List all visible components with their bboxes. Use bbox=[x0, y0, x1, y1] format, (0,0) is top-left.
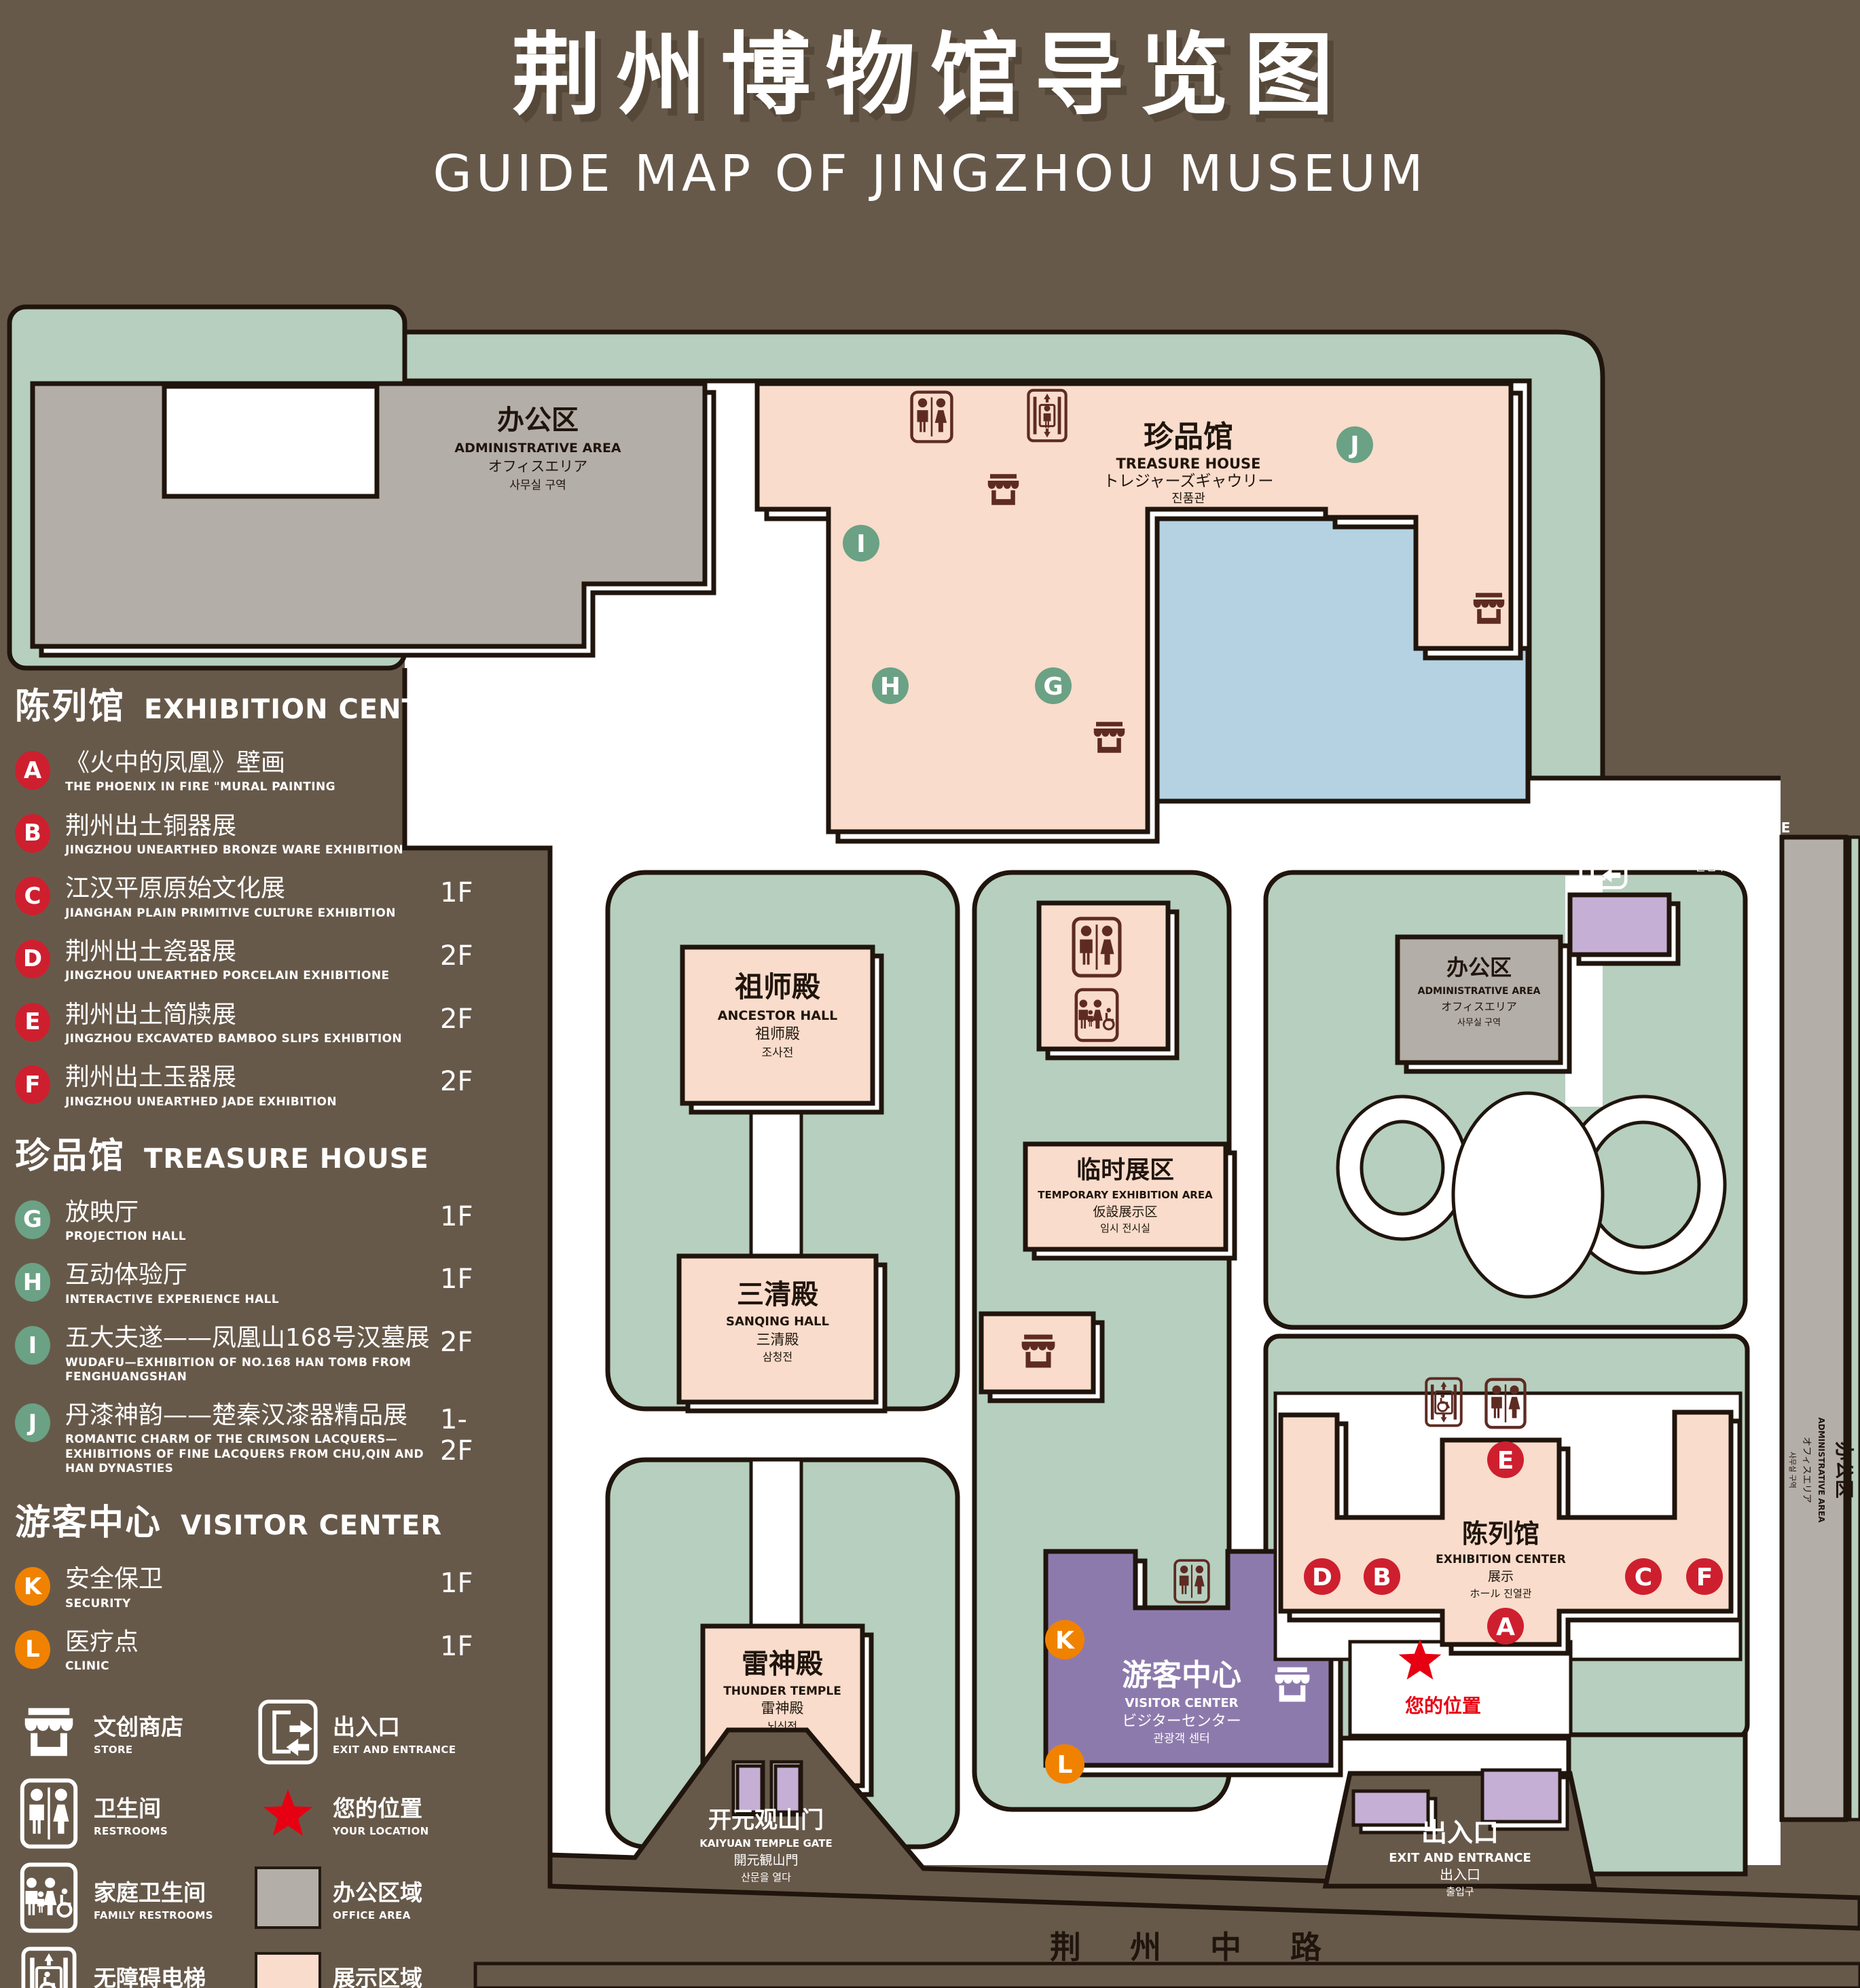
restroom-building bbox=[1039, 903, 1177, 1058]
svg-text:L: L bbox=[1057, 1751, 1073, 1779]
legend-item-E: E 荆州出土简牍展 JINGZHOU EXCAVATED BAMBOO SLIP… bbox=[15, 1001, 498, 1047]
legend-section-treasure-house: 珍品馆 TREASURE HOUSE bbox=[15, 1127, 498, 1178]
svg-text:H: H bbox=[880, 673, 900, 701]
svg-text:I: I bbox=[856, 530, 865, 558]
ancestor-label-zh: 祖师殿 bbox=[735, 970, 820, 1004]
svg-text:E: E bbox=[1497, 1447, 1514, 1475]
family-restroom-icon bbox=[15, 1862, 83, 1933]
admin-strip-label-ja: オフィスエリア bbox=[1801, 1437, 1812, 1503]
floor-label: 2F bbox=[440, 1001, 498, 1035]
marker-badge-J: J bbox=[15, 1403, 50, 1442]
floor-label: 2F bbox=[440, 1324, 498, 1358]
floor-label: 2F bbox=[440, 938, 498, 972]
exit-b-label-ja: 出入口 bbox=[1440, 1866, 1480, 1883]
sanqing-label-ja: 三清殿 bbox=[756, 1331, 799, 1348]
svg-text:A: A bbox=[1496, 1613, 1515, 1641]
legend-item-G: G 放映厅 PROJECTION HALL 1F bbox=[15, 1198, 498, 1245]
legend-office-area: 办公区域 OFFICE AREA bbox=[254, 1862, 493, 1933]
floor-label: 2F bbox=[440, 1063, 498, 1097]
visitor-label-ko: 관광객 센터 bbox=[1153, 1732, 1210, 1746]
gate-label-zh: 开元观山门 bbox=[708, 1807, 824, 1834]
marker-badge-K: K bbox=[15, 1567, 50, 1606]
admin-mid-label-ja: オフィスエリア bbox=[1441, 1000, 1517, 1013]
legend-store: 文创商店 STORE bbox=[15, 1699, 254, 1765]
marker-badge-D: D bbox=[15, 940, 50, 978]
marker-A: A bbox=[1487, 1608, 1524, 1644]
svg-text:D: D bbox=[1312, 1564, 1332, 1591]
thunder-label-ja: 雷神殿 bbox=[761, 1700, 804, 1716]
floor-label: 1F bbox=[440, 875, 498, 908]
marker-F: F bbox=[1686, 1558, 1723, 1595]
legend-item-I: I 五大夫遂——凤凰山168号汉墓展 WUDAFU—EXHIBITION OF … bbox=[15, 1324, 498, 1384]
guide-map-page: 办公区 ADMINISTRATIVE AREA オフィスエリア 사무실 구역 珍… bbox=[0, 0, 1860, 1988]
visitor-label-ja: ビジターセンター bbox=[1122, 1713, 1241, 1730]
treasure-label-en: TREASURE HOUSE bbox=[1116, 456, 1260, 472]
sanqing-hall-building: 三清殿 SANQING HALL 三清殿 삼청전 bbox=[679, 1256, 885, 1411]
store-building bbox=[981, 1314, 1102, 1401]
exit-tr-label-ja: 出入口 bbox=[1689, 840, 1734, 857]
svg-text:F: F bbox=[1696, 1564, 1713, 1591]
gate-label-en: KAIYUAN TEMPLE GATE bbox=[699, 1837, 832, 1849]
marker-badge-H: H bbox=[15, 1263, 50, 1302]
marker-B: B bbox=[1364, 1558, 1400, 1595]
ancestor-label-en: ANCESTOR HALL bbox=[718, 1008, 837, 1023]
marker-L: L bbox=[1045, 1744, 1084, 1784]
floor-label: 1F bbox=[440, 1565, 498, 1599]
office-area-swatch bbox=[254, 1866, 322, 1929]
exit-tr-label-en: EXIT AND ENTRANCE bbox=[1633, 820, 1791, 836]
legend-display-area: 展示区域 DISPLAY AREA bbox=[254, 1947, 493, 1988]
road-name-label: 荆 州 中 路 bbox=[1050, 1929, 1341, 1966]
sanqing-label-zh: 三清殿 bbox=[737, 1279, 818, 1310]
admin-building-mid-right: 办公区 ADMINISTRATIVE AREA オフィスエリア 사무실 구역 bbox=[1398, 937, 1569, 1071]
accessible-elevator-icon bbox=[15, 1947, 83, 1988]
admin-mid-label-zh: 办公区 bbox=[1446, 955, 1512, 980]
legend-exit: 出入口 EXIT AND ENTRANCE bbox=[254, 1699, 493, 1765]
thunder-label-zh: 雷神殿 bbox=[742, 1649, 823, 1680]
section-title-en: EXHIBITION CENTER bbox=[144, 694, 462, 725]
exit-tr-label-ko: 출입구 bbox=[1696, 860, 1728, 874]
legend-item-J: J 丹漆神韵——楚秦汉漆器精品展 ROMANTIC CHARM OF THE C… bbox=[15, 1401, 498, 1476]
sanqing-label-en: SANQING HALL bbox=[726, 1314, 829, 1329]
admin-strip-label-en: ADMINISTRATIVE AREA bbox=[1817, 1418, 1826, 1524]
exit-b-label-en: EXIT AND ENTRANCE bbox=[1389, 1851, 1531, 1865]
sanqing-label-ko: 삼청전 bbox=[763, 1350, 792, 1363]
legend-family-restrooms: 家庭卫生间 FAMILY RESTROOMS bbox=[15, 1862, 254, 1933]
admin-building-right-strip: 办公区 ADMINISTRATIVE AREA オフィスエリア 사무실 구역 bbox=[1782, 837, 1855, 1820]
marker-J: J bbox=[1336, 426, 1373, 463]
your-location-label: 您的位置 bbox=[1405, 1695, 1481, 1717]
admin-tl-label-en: ADMINISTRATIVE AREA bbox=[454, 441, 621, 456]
exhibition-label-ja: 展示 bbox=[1488, 1569, 1514, 1584]
grass-right-sliver bbox=[1850, 837, 1860, 1820]
svg-text:C: C bbox=[1635, 1564, 1652, 1591]
gate-building-purple bbox=[1482, 1770, 1560, 1822]
exit-b-label-zh: 出入口 bbox=[1421, 1818, 1499, 1847]
marker-G: G bbox=[1035, 667, 1072, 704]
gate-label-ja: 開元観山門 bbox=[733, 1853, 798, 1868]
exhibition-label-zh: 陈列馆 bbox=[1462, 1519, 1539, 1549]
treasure-label-ko: 진품관 bbox=[1171, 492, 1205, 506]
section-title-en: TREASURE HOUSE bbox=[144, 1143, 429, 1175]
legend-item-L: L 医疗点 CLINIC 1F bbox=[15, 1628, 498, 1674]
page-header: 荆州博物馆导览图 GUIDE MAP OF JINGZHOU MUSEUM bbox=[0, 0, 1860, 203]
elevator-icon bbox=[1028, 390, 1065, 441]
exhibition-label-en: EXHIBITION CENTER bbox=[1436, 1553, 1566, 1566]
marker-badge-I: I bbox=[15, 1326, 50, 1365]
marker-C: C bbox=[1625, 1558, 1662, 1595]
admin-strip-label-ko: 사무실 구역 bbox=[1788, 1452, 1797, 1488]
marker-I: I bbox=[843, 525, 879, 562]
admin-strip-label-zh: 办公区 bbox=[1833, 1441, 1855, 1498]
exit-b-label-ko: 출입구 bbox=[1446, 1885, 1474, 1898]
floor-label: 1F bbox=[440, 812, 498, 846]
marker-badge-G: G bbox=[15, 1200, 50, 1239]
legend-restrooms: 卫生间 RESTROOMS bbox=[15, 1778, 254, 1849]
legend-section-visitor-center: 游客中心 VISITOR CENTER bbox=[15, 1494, 498, 1545]
exit-bottom: 出入口 EXIT AND ENTRANCE 出入口 출입구 bbox=[1326, 1770, 1594, 1898]
treasure-label-zh: 珍品馆 bbox=[1144, 420, 1233, 454]
visitor-label-en: VISITOR CENTER bbox=[1125, 1696, 1238, 1710]
legend: 陈列馆 EXHIBITION CENTER A 《火中的凤凰》壁画 THE PH… bbox=[15, 678, 498, 1988]
legend-item-H: H 互动体验厅 INTERACTIVE EXPERIENCE HALL 1F bbox=[15, 1261, 498, 1307]
svg-text:B: B bbox=[1372, 1564, 1391, 1591]
gate-building-purple bbox=[1570, 895, 1669, 955]
temp-label-ja: 仮設展示区 bbox=[1093, 1204, 1157, 1219]
legend-item-D: D 荆州出土瓷器展 JINGZHOU UNEARTHED PORCELAIN E… bbox=[15, 938, 498, 984]
marker-badge-F: F bbox=[15, 1065, 50, 1104]
store-icon bbox=[15, 1704, 83, 1760]
exhibition-label-ko: ホール 진열관 bbox=[1470, 1587, 1531, 1600]
exit-tr-label-zh: 出入口 bbox=[1666, 782, 1756, 817]
floor-label: 1-2F bbox=[440, 1401, 498, 1467]
legend-item-C: C 江汉平原原始文化展 JIANGHAN PLAIN PRIMITIVE CUL… bbox=[15, 875, 498, 921]
admin-tl-label-zh: 办公区 bbox=[497, 405, 579, 436]
legend-section-exhibition-center: 陈列馆 EXHIBITION CENTER bbox=[15, 678, 498, 729]
legend-item-F: F 荆州出土玉器展 JINGZHOU UNEARTHED JADE EXHIBI… bbox=[15, 1063, 498, 1109]
location-star-icon bbox=[254, 1788, 322, 1839]
grass-bottom-right bbox=[1569, 1735, 1745, 1874]
marker-badge-E: E bbox=[15, 1003, 50, 1042]
section-title-zh: 游客中心 bbox=[15, 1494, 162, 1545]
marker-K: K bbox=[1045, 1620, 1084, 1659]
admin-tl-label-ja: オフィスエリア bbox=[488, 458, 588, 475]
admin-tl-label-ko: 사무실 구역 bbox=[509, 479, 566, 492]
thunder-label-en: THUNDER TEMPLE bbox=[723, 1685, 841, 1698]
floor-label: 1F bbox=[440, 1198, 498, 1232]
marker-badge-B: B bbox=[15, 814, 50, 853]
temp-label-zh: 临时展区 bbox=[1076, 1156, 1174, 1184]
marker-D: D bbox=[1304, 1558, 1341, 1595]
floor-label: 1F bbox=[440, 1628, 498, 1662]
marker-badge-C: C bbox=[15, 877, 50, 915]
gate-pillar bbox=[776, 1766, 800, 1812]
svg-text:J: J bbox=[1348, 432, 1359, 460]
legend-item-B: B 荆州出土铜器展 JINGZHOU UNEARTHED BRONZE WARE… bbox=[15, 812, 498, 858]
floor-label: 1F bbox=[440, 1261, 498, 1295]
ancestor-label-ko: 조사전 bbox=[762, 1046, 794, 1060]
section-title-zh: 珍品馆 bbox=[15, 1127, 125, 1178]
exit-icon bbox=[254, 1699, 322, 1765]
gate-label-ko: 산문을 열다 bbox=[741, 1871, 791, 1883]
admin-mid-label-ko: 사무실 구역 bbox=[1457, 1018, 1501, 1028]
accessible-elevator-icon bbox=[1426, 1378, 1461, 1425]
marker-badge-A: A bbox=[15, 751, 50, 790]
legend-item-K: K 安全保卫 SECURITY 1F bbox=[15, 1565, 498, 1611]
treasure-label-ja: トレジャーズギャウリー bbox=[1104, 473, 1274, 490]
temp-label-ko: 임시 전시실 bbox=[1100, 1222, 1150, 1234]
marker-H: H bbox=[872, 667, 909, 704]
road-bottom-strip bbox=[475, 1964, 1860, 1988]
temporary-exhibition-building: 临时展区 TEMPORARY EXHIBITION AREA 仮設展示区 임시 … bbox=[1025, 1144, 1235, 1258]
svg-text:G: G bbox=[1043, 673, 1063, 701]
svg-text:K: K bbox=[1055, 1627, 1075, 1655]
marker-badge-L: L bbox=[15, 1630, 50, 1669]
legend-symbols: 文创商店 STORE 出入口 EXIT AND ENTRANCE 卫生间 RES… bbox=[15, 1699, 498, 1988]
section-title-en: VISITOR CENTER bbox=[181, 1510, 442, 1541]
marker-E: E bbox=[1487, 1441, 1524, 1478]
ancestor-label-ja: 祖师殿 bbox=[755, 1026, 800, 1043]
restroom-icon bbox=[15, 1778, 83, 1849]
page-subtitle: GUIDE MAP OF JINGZHOU MUSEUM bbox=[0, 145, 1860, 203]
visitor-label-zh: 游客中心 bbox=[1122, 1658, 1241, 1693]
gate-pillar bbox=[737, 1766, 762, 1812]
page-title: 荆州博物馆导览图 bbox=[0, 3, 1860, 132]
display-area-swatch bbox=[254, 1952, 322, 1988]
legend-your-location: 您的位置 YOUR LOCATION bbox=[254, 1778, 493, 1849]
gate-building-purple bbox=[1353, 1791, 1428, 1825]
floor-label: 1F bbox=[440, 749, 498, 783]
temp-label-en: TEMPORARY EXHIBITION AREA bbox=[1038, 1189, 1213, 1201]
section-title-zh: 陈列馆 bbox=[15, 678, 125, 729]
admin-mid-label-en: ADMINISTRATIVE AREA bbox=[1418, 986, 1541, 997]
legend-item-A: A 《火中的凤凰》壁画 THE PHOENIX IN FIRE "MURAL P… bbox=[15, 749, 498, 795]
legend-accessible-elevator: 无障碍电梯 ACCESSIBLE ELEVATOR bbox=[15, 1947, 254, 1988]
